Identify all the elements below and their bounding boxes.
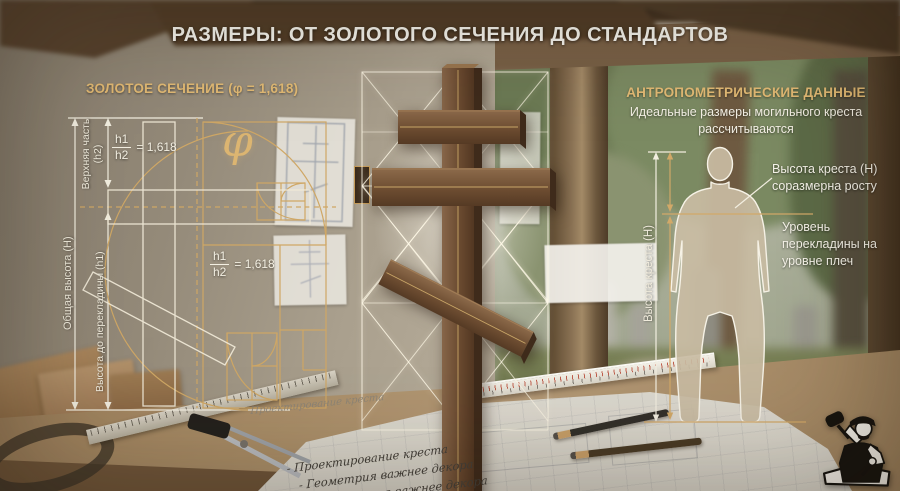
ratio-denominator: h2 <box>213 265 226 279</box>
phi-symbol: φ <box>222 116 253 167</box>
orthodox-cross-3d <box>368 56 558 491</box>
human-silhouette <box>671 148 769 423</box>
label-crossbar-shoulder-level: Уровень перекладины на уровне плеч <box>782 219 900 270</box>
ratio-value: = 1,618 <box>234 257 274 271</box>
dim-label-total-height: Общая высота (H) <box>62 236 74 330</box>
golden-ratio-formula: h1 h2 = 1,618 <box>210 250 275 278</box>
anthropometric-heading: АНТРОПОМЕТРИЧЕСКИЕ ДАННЫЕ <box>600 85 892 100</box>
golden-ratio-formula: h1 h2 = 1,618 <box>112 133 177 161</box>
dim-label-cross-height-vertical: Высота креста (H) <box>643 225 655 322</box>
stonemason-logo-icon <box>812 402 898 490</box>
ratio-numerator: h1 <box>112 133 131 148</box>
ratio-denominator: h2 <box>115 148 128 162</box>
golden-section-heading: ЗОЛОТОЕ СЕЧЕНИЕ (φ = 1,618) <box>86 81 298 96</box>
ratio-value: = 1,618 <box>136 140 176 154</box>
anthropometric-subtitle: Идеальные размеры могильного креста расс… <box>618 104 874 137</box>
page-title: РАЗМЕРЫ: ОТ ЗОЛОТОГО СЕЧЕНИЯ ДО СТАНДАРТ… <box>0 24 900 47</box>
ratio-numerator: h1 <box>210 250 229 265</box>
infographic-canvas: РАЗМЕРЫ: ОТ ЗОЛОТОГО СЕЧЕНИЯ ДО СТАНДАРТ… <box>0 0 900 491</box>
dim-label-upper-part: Верхняя часть (h2) <box>80 116 104 192</box>
label-cross-height-to-stature: Высота креста (H) соразмерна росту <box>772 161 900 195</box>
dim-label-height-to-crossbar: Высота до перекладины (h1) <box>94 251 106 392</box>
